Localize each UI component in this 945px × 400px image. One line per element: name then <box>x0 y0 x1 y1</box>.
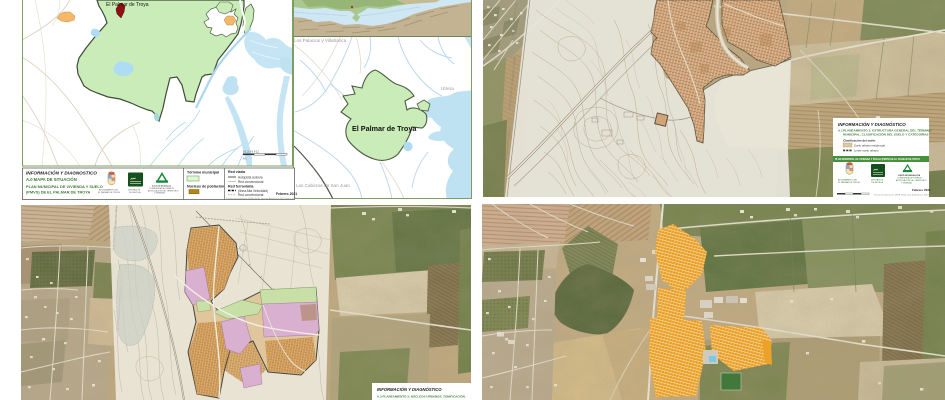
svg-text:Utrera: Utrera <box>441 86 454 91</box>
svg-text:PLAN MUNICIPAL DE VIVIENDA Y S: PLAN MUNICIPAL DE VIVIENDA Y SUELO (PMVS… <box>835 158 920 161</box>
svg-text:سم: سم <box>131 176 136 180</box>
svg-text:Los Palacios y Villafranca: Los Palacios y Villafranca <box>294 38 347 43</box>
svg-text:Fuentes de Información: DERA,: Fuentes de Información: DERA, IECA, Junt… <box>226 197 297 200</box>
svg-text:JUNTA DE ANDALUCÍA: JUNTA DE ANDALUCÍA <box>898 174 921 177</box>
svg-text:Autopista autovía: Autopista autovía <box>238 175 263 179</box>
svg-text:Junta de Andalucía: Junta de Andalucía <box>152 184 172 187</box>
svg-text:El Palmar de Troya: El Palmar de Troya <box>106 2 149 8</box>
svg-text:Término municipal: Término municipal <box>187 171 219 175</box>
svg-text:Febrero 2021: Febrero 2021 <box>912 188 931 192</box>
svg-text:EL PALMAR DE TROYA: EL PALMAR DE TROYA <box>98 191 120 194</box>
svg-text:Febrero 2021: Febrero 2021 <box>276 192 297 196</box>
svg-text:EL PALMAR DE TROYA: EL PALMAR DE TROYA <box>838 181 860 184</box>
svg-text:INFORMACIÓN Y DIAGNOSTICO: INFORMACIÓN Y DIAGNOSTICO <box>26 170 97 176</box>
svg-text:0 1,5 3 6 9: 0 1,5 3 6 9 12 <box>243 150 259 154</box>
svg-text:Las Cabezas de San Juan: Las Cabezas de San Juan <box>296 183 350 188</box>
svg-text:Y VIVIENDA: Y VIVIENDA <box>901 181 912 184</box>
svg-text:Red convencional: Red convencional <box>238 180 264 184</box>
svg-text:El Palmar de Troya: El Palmar de Troya <box>352 124 417 133</box>
svg-text:Km: Km <box>243 158 247 161</box>
svg-text:A.0 MAPA DE SITUACIÓN: A.0 MAPA DE SITUACIÓN <box>26 177 77 182</box>
svg-text:سم: سم <box>874 167 879 171</box>
svg-text:Y VIVIENDA: Y VIVIENDA <box>154 192 165 195</box>
svg-text:A.3 PLANEAMIENTO 3: NÚCLEOS U: A.3 PLANEAMIENTO 3: NÚCLEOS URBANOS. ZON… <box>377 394 466 399</box>
svg-text:DE SEVILLA: DE SEVILLA <box>872 181 884 184</box>
svg-text:Núcleos de población: Núcleos de población <box>187 185 224 189</box>
svg-text:Red ferroviaria: Red ferroviaria <box>228 184 254 188</box>
svg-text:Red viaria: Red viaria <box>228 170 246 174</box>
svg-text:DE SEVILLA: DE SEVILLA <box>129 191 141 194</box>
svg-text:Límite suelo urbano: Límite suelo urbano <box>854 149 879 153</box>
svg-text:INFORMACIÓN Y DIAGNÓSTICO: INFORMACIÓN Y DIAGNÓSTICO <box>838 122 906 127</box>
svg-text:(PMVS) DE EL PALMAR DE TROYA: (PMVS) DE EL PALMAR DE TROYA <box>26 190 91 195</box>
svg-text:Red convencional: Red convencional <box>238 193 264 197</box>
svg-text:Suelo urbano residencial: Suelo urbano residencial <box>854 143 885 147</box>
svg-text:MUNICIPAL, CLASIFICACIÓN DEL S: MUNICIPAL, CLASIFICACIÓN DEL SUELO Y CAT… <box>843 132 928 137</box>
svg-text:Fuentes de Información: DERA,: Fuentes de Información: DERA, IECA, Junt… <box>874 193 935 196</box>
svg-text:PLAN MUNICIPAL DE VIVIENDA Y S: PLAN MUNICIPAL DE VIVIENDA Y SUELO <box>26 184 103 189</box>
svg-text:INFORMACIÓN Y DIAGNÓSTICO: INFORMACIÓN Y DIAGNÓSTICO <box>377 387 442 392</box>
svg-text:Clasificación del suelo: Clasificación del suelo <box>843 138 876 142</box>
